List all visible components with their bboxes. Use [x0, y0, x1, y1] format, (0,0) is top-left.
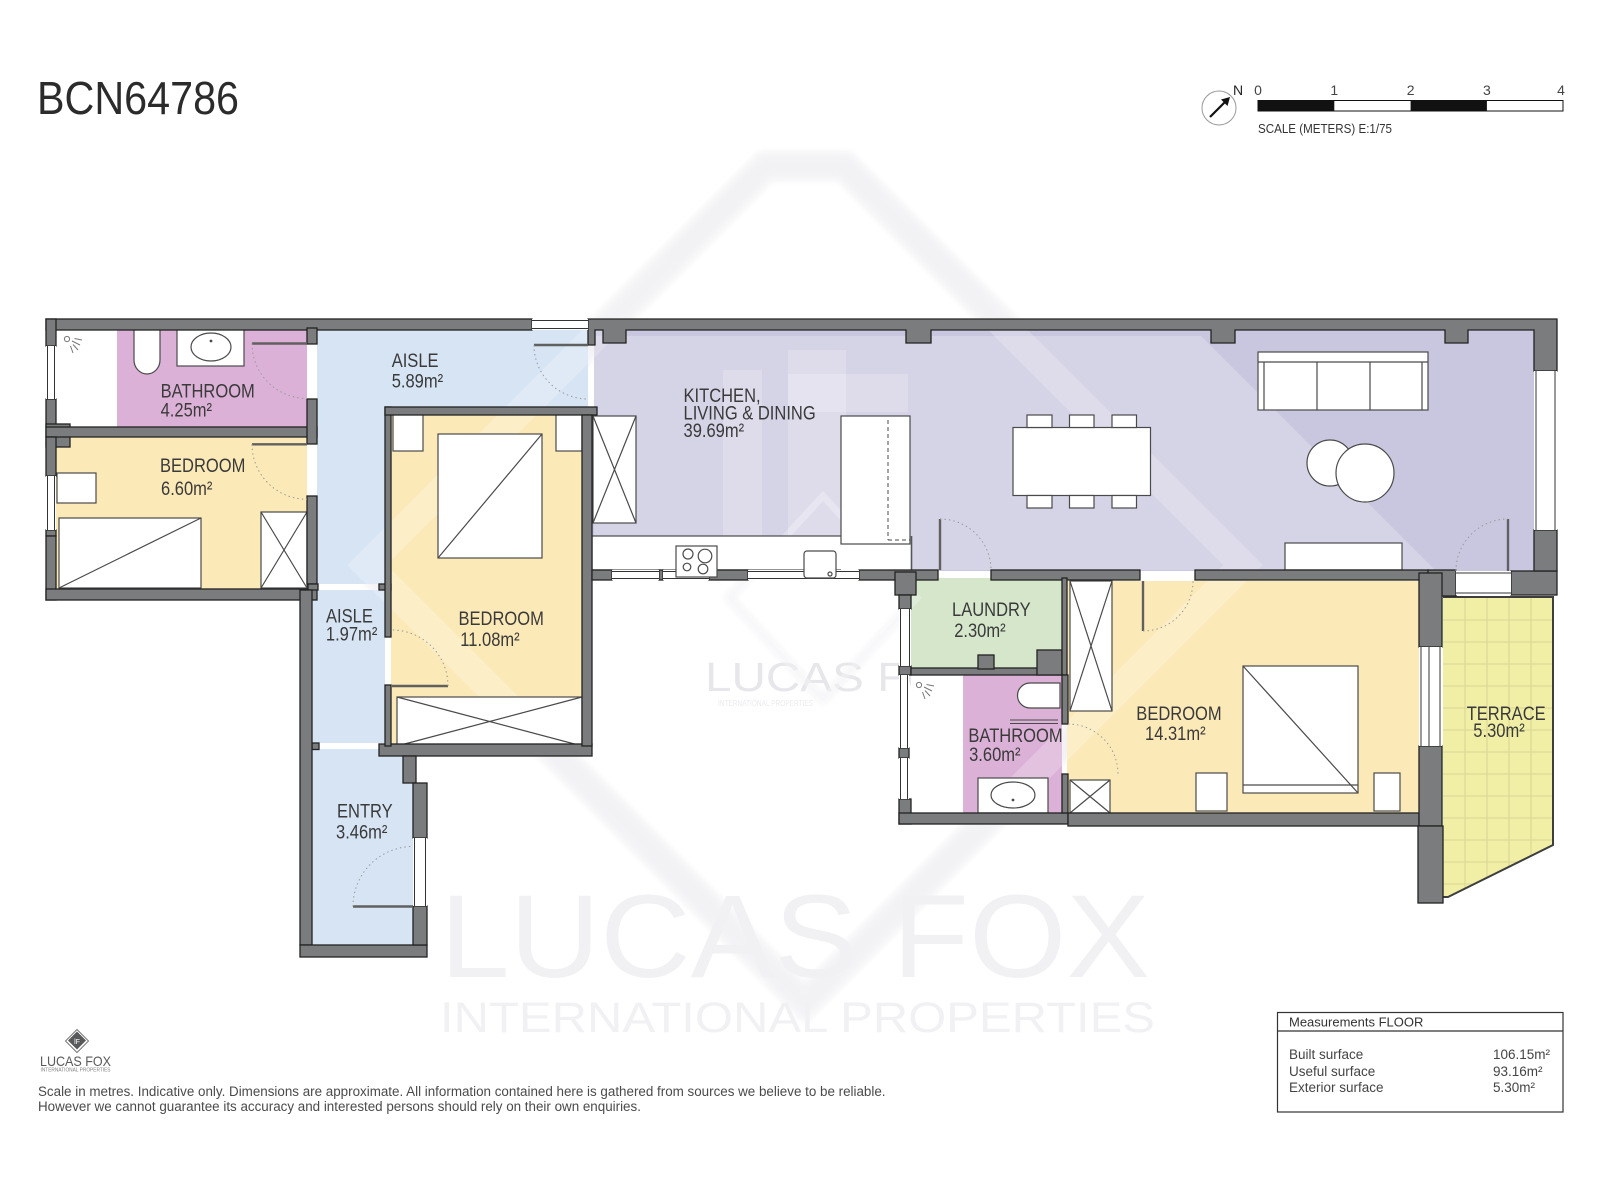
- svg-text:Scale in metres. Indicative on: Scale in metres. Indicative only. Dimens…: [38, 1084, 886, 1099]
- svg-text:5.30m²: 5.30m²: [1493, 1080, 1536, 1095]
- svg-text:2.30m²: 2.30m²: [954, 620, 1005, 641]
- svg-text:1.97m²: 1.97m²: [326, 623, 377, 644]
- svg-text:2: 2: [1407, 82, 1415, 98]
- svg-text:14.31m²: 14.31m²: [1145, 723, 1206, 744]
- svg-text:INTERNATIONAL PROPERTIES: INTERNATIONAL PROPERTIES: [41, 1068, 112, 1074]
- svg-text:4.25m²: 4.25m²: [161, 399, 212, 420]
- svg-text:5.30m²: 5.30m²: [1473, 720, 1524, 741]
- svg-text:11.08m²: 11.08m²: [460, 629, 519, 650]
- svg-text:N: N: [1233, 82, 1243, 98]
- svg-text:lF: lF: [74, 1039, 80, 1046]
- svg-text:However we cannot guarantee it: However we cannot guarantee its accuracy…: [38, 1099, 641, 1114]
- svg-text:3: 3: [1483, 82, 1491, 98]
- svg-text:BEDROOM: BEDROOM: [459, 608, 544, 629]
- svg-text:5.89m²: 5.89m²: [392, 370, 443, 391]
- svg-text:Built surface: Built surface: [1289, 1047, 1363, 1062]
- svg-text:BEDROOM: BEDROOM: [1136, 703, 1221, 724]
- svg-text:6.60m²: 6.60m²: [161, 478, 212, 499]
- svg-text:INTERNATIONAL PROPERTIES: INTERNATIONAL PROPERTIES: [718, 699, 813, 708]
- svg-text:39.69m²: 39.69m²: [684, 420, 745, 441]
- svg-text:LUCAS FOX: LUCAS FOX: [440, 871, 1150, 1003]
- svg-text:3.60m²: 3.60m²: [969, 744, 1020, 765]
- svg-text:4: 4: [1557, 82, 1565, 98]
- svg-text:ENTRY: ENTRY: [337, 800, 393, 821]
- svg-text:106.15m²: 106.15m²: [1493, 1047, 1551, 1062]
- svg-text:AISLE: AISLE: [392, 350, 439, 371]
- svg-text:INTERNATIONAL PROPERTIES: INTERNATIONAL PROPERTIES: [440, 994, 1155, 1042]
- svg-text:1: 1: [1330, 82, 1338, 98]
- svg-text:3.46m²: 3.46m²: [336, 821, 387, 842]
- svg-text:Useful surface: Useful surface: [1289, 1064, 1375, 1079]
- svg-text:BCN64786: BCN64786: [37, 72, 239, 124]
- svg-text:0: 0: [1254, 82, 1262, 98]
- svg-text:Exterior surface: Exterior surface: [1289, 1080, 1384, 1095]
- svg-text:SCALE (METERS) E:1/75: SCALE (METERS) E:1/75: [1258, 122, 1392, 136]
- svg-text:Measurements FLOOR: Measurements FLOOR: [1289, 1015, 1423, 1030]
- svg-text:BEDROOM: BEDROOM: [160, 455, 245, 476]
- svg-text:93.16m²: 93.16m²: [1493, 1064, 1543, 1079]
- svg-text:LAUNDRY: LAUNDRY: [952, 599, 1031, 620]
